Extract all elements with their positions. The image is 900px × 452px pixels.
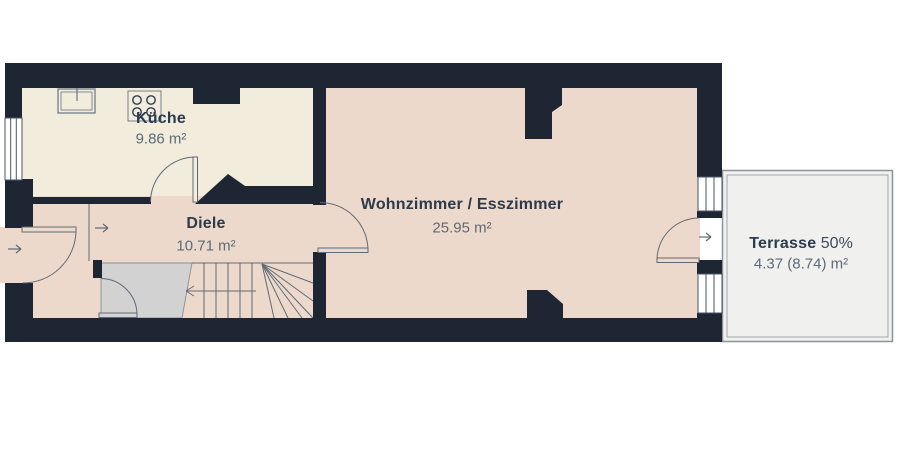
terrace-area-value: 4.37 (8.74) m²	[754, 257, 848, 272]
floor-plan: Küche 9.86 m² Diele 10.71 m² Wohnzimmer …	[0, 0, 900, 452]
room-area-kueche: 9.86 m²	[136, 132, 187, 147]
entrance-floor	[0, 227, 33, 283]
wall-north	[5, 63, 722, 88]
wall-south	[5, 318, 722, 342]
wall-west-upper	[5, 63, 22, 120]
room-label-diele: Diele	[186, 216, 225, 232]
terrace-arrow-icon	[699, 233, 711, 241]
room-name: Wohnzimmer / Esszimmer	[361, 196, 563, 213]
window-east-lower	[698, 274, 722, 313]
room-name: Diele	[186, 215, 225, 232]
understair-area	[101, 263, 192, 318]
partition-wall-upper	[313, 63, 326, 205]
terrace-name: Terrasse	[749, 235, 816, 252]
room-name: Küche	[136, 110, 186, 127]
room-label-kueche: Küche	[136, 111, 186, 127]
wall-east-sill-2	[697, 260, 722, 274]
window-west	[5, 118, 22, 180]
wall-east-lower	[697, 313, 722, 342]
wall-east-sill-1	[697, 211, 722, 218]
room-label-wohnzimmer: Wohnzimmer / Esszimmer	[361, 197, 563, 213]
partition-wall-lower	[313, 252, 326, 318]
kitchen-north-pier	[193, 88, 240, 104]
wall-east-upper	[697, 63, 722, 177]
wall-west-lower	[5, 283, 33, 323]
understair-wall-stub	[93, 260, 102, 278]
kitchen-south-wall	[22, 197, 151, 204]
room-area-diele: 10.71 m²	[176, 239, 235, 254]
room-area-wohnzimmer: 25.95 m²	[432, 221, 491, 236]
terrace-label: Terrasse 50%	[749, 236, 853, 252]
window-east-upper	[698, 177, 722, 211]
terrace-share: 50%	[821, 235, 853, 252]
